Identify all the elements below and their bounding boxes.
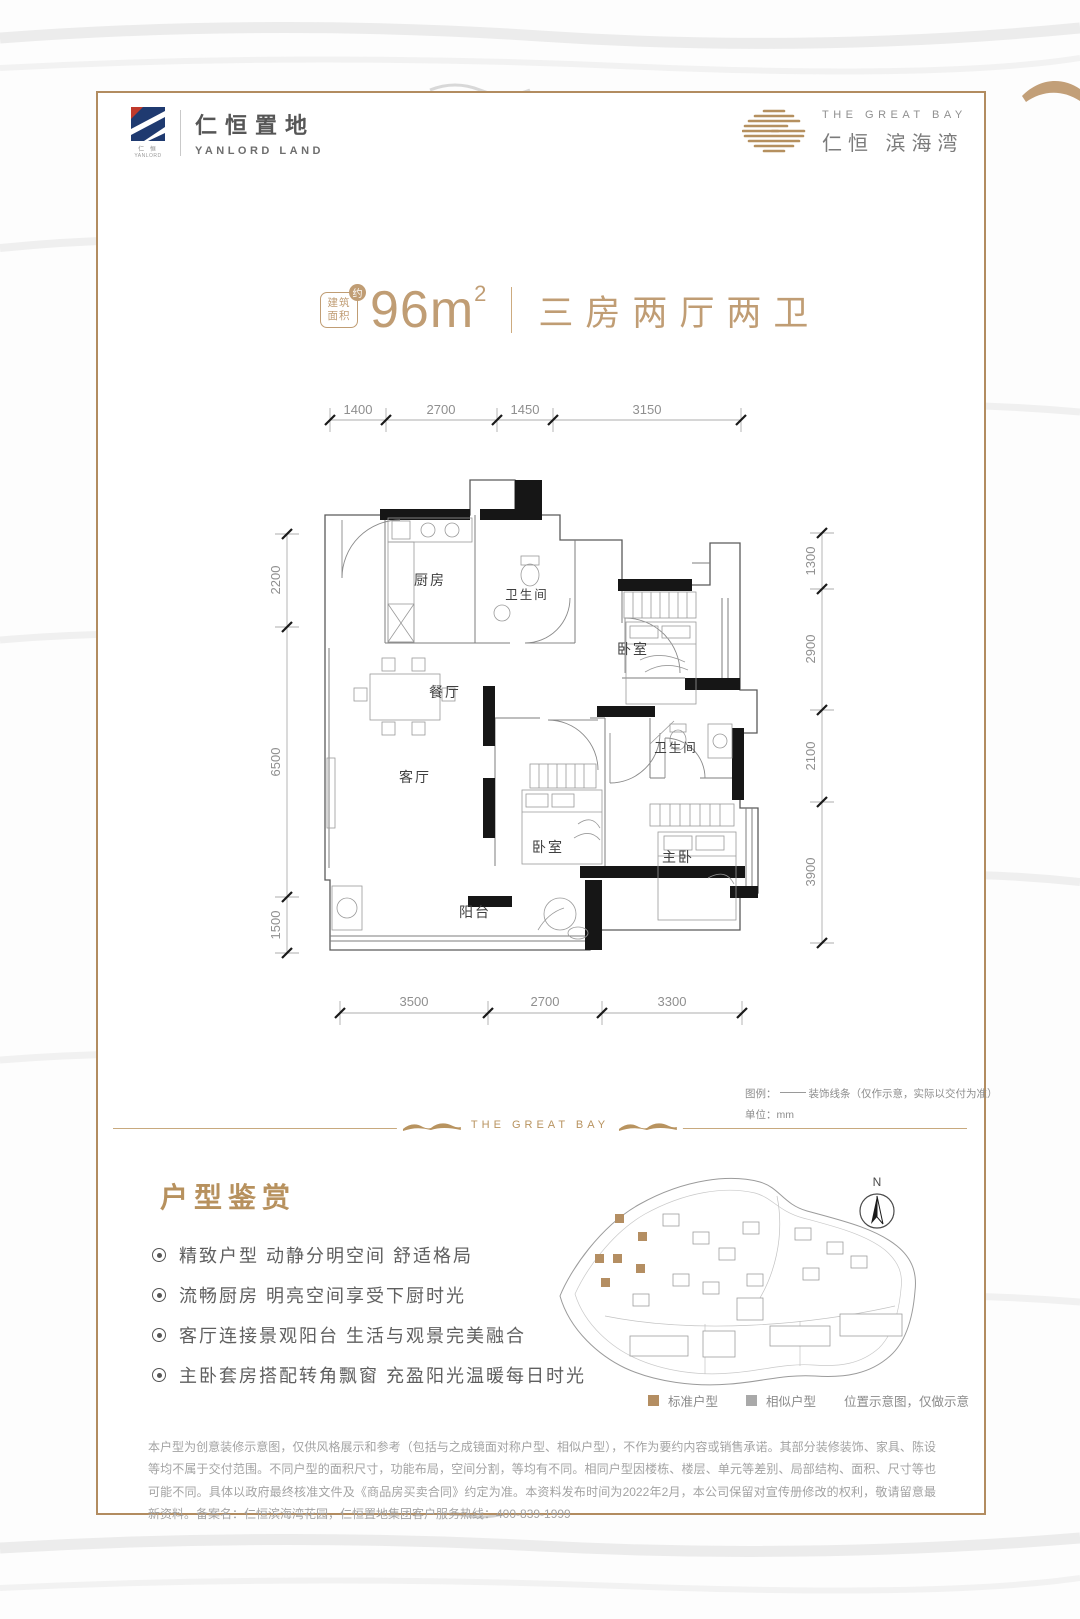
section-divider-label: THE GREAT BAY [397, 1118, 683, 1132]
room-label-kitchen: 厨房 [414, 572, 446, 588]
brand-divider [180, 110, 181, 156]
appreciation-heading: 户型鉴赏 [160, 1176, 296, 1216]
room-label-bath2: 卫生间 [654, 741, 698, 755]
bullet-icon [152, 1248, 166, 1262]
dim-bottom-2: 2700 [531, 994, 560, 1009]
similar-unit-swatch [746, 1395, 757, 1406]
brochure-page: 仁 恒 YANLORD 仁恒置地 YANLORD LAND [0, 0, 1080, 1619]
legend-text: 装饰线条（仅作示意，实际以交付为准） [809, 1088, 998, 1100]
list-item: 流畅厨房 明亮空间享受下厨时光 [152, 1282, 572, 1308]
greatbay-name-en: THE GREAT BAY [822, 109, 967, 121]
list-item: 主卧套房搭配转角飘窗 充盈阳光温暖每日时光 [152, 1362, 572, 1388]
bullet-text: 客厅连接景观阳台 生活与观景完美融合 [179, 1322, 526, 1348]
bullet-text: 流畅厨房 明亮空间享受下厨时光 [179, 1282, 466, 1308]
room-label-bedroom1: 卧室 [617, 641, 649, 657]
bullet-icon [152, 1368, 166, 1382]
greatbay-brand: THE GREAT BAY 仁恒 滨海湾 [742, 108, 967, 156]
title-divider [511, 287, 512, 333]
approx-circle: 约 [349, 284, 366, 301]
list-item: 客厅连接景观阳台 生活与观景完美融合 [152, 1322, 572, 1348]
bullet-text: 精致户型 动静分明空间 舒适格局 [179, 1242, 473, 1268]
greatbay-name-cn: 仁恒 滨海湾 [822, 127, 967, 156]
dim-top-1: 1400 [344, 402, 373, 417]
dim-left-2: 6500 [268, 748, 283, 777]
dim-bottom-1: 3500 [400, 994, 429, 1009]
area-badge: 建筑 面积 约 [320, 292, 358, 328]
layout-name: 三房两厅两卫 [538, 285, 820, 336]
yanlord-logo-icon: 仁 恒 YANLORD [130, 106, 166, 159]
unit-text: 单位：mm [745, 1105, 998, 1126]
room-label-balcony: 阳台 [459, 904, 491, 920]
site-legend: 标准户型 相似户型 位置示意图，仅做示意 [648, 1391, 969, 1410]
bullet-text: 主卧套房搭配转角飘窗 充盈阳光温暖每日时光 [179, 1362, 586, 1388]
area-badge-line1: 建筑 [328, 297, 351, 310]
site-plan: N [545, 1156, 935, 1386]
appreciation-list: 精致户型 动静分明空间 舒适格局 流畅厨房 明亮空间享受下厨时光 客厅连接景观阳… [152, 1242, 572, 1402]
outer-wall [325, 480, 758, 950]
dim-right-4: 3900 [803, 858, 818, 887]
yanlord-brand: 仁 恒 YANLORD 仁恒置地 YANLORD LAND [130, 106, 324, 159]
compass-north-label: N [873, 1175, 882, 1189]
divider-text: THE GREAT BAY [471, 1119, 609, 1131]
area-badge-line2: 面积 [328, 310, 351, 323]
wave-icon [403, 1118, 461, 1132]
area-sup: 2 [474, 281, 487, 306]
dim-bottom-3: 3300 [658, 994, 687, 1009]
dim-right-3: 2100 [803, 742, 818, 771]
plan-legend: 图例：装饰线条（仅作示意，实际以交付为准） 单位：mm [745, 1084, 998, 1126]
disclaimer-text: 本户型为创意装修示意图，仅供风格展示和参考（包括与之成镜面对称户型、相似户型），… [148, 1436, 936, 1525]
decorative-line-sample [780, 1092, 806, 1093]
compass-icon: N [860, 1175, 894, 1228]
yanlord-name-cn: 仁恒置地 [195, 108, 324, 140]
site-buildings [630, 1214, 902, 1357]
floor-plan: 1400 2700 1450 3150 2200 6500 1500 1300 … [230, 388, 870, 1028]
site-legend-note: 位置示意图，仅做示意 [844, 1391, 969, 1410]
room-label-living: 客厅 [399, 769, 431, 785]
bullet-icon [152, 1288, 166, 1302]
bullet-icon [152, 1328, 166, 1342]
yanlord-mark-en: YANLORD [134, 153, 161, 159]
room-label-dining: 餐厅 [429, 684, 461, 700]
dim-top-3: 1450 [511, 402, 540, 417]
dim-top-4: 3150 [633, 402, 662, 417]
unit-title: 建筑 面积 约 96m2 三房两厅两卫 [320, 280, 820, 340]
similar-unit-label: 相似户型 [766, 1391, 816, 1410]
dim-right-2: 2900 [803, 635, 818, 664]
dim-top-2: 2700 [427, 402, 456, 417]
dim-right-1: 1300 [803, 547, 818, 576]
room-label-master: 主卧 [662, 849, 694, 865]
standard-unit-swatch [648, 1395, 659, 1406]
wave-icon [619, 1118, 677, 1132]
greatbay-logo-icon [742, 108, 806, 156]
shear-walls [380, 480, 758, 950]
yanlord-name-en: YANLORD LAND [195, 145, 324, 157]
room-label-bedroom2: 卧室 [532, 839, 564, 855]
yanlord-mark-cn: 仁 恒 [138, 144, 158, 153]
area-number: 96m [370, 281, 474, 339]
list-item: 精致户型 动静分明空间 舒适格局 [152, 1242, 572, 1268]
legend-label: 图例： [745, 1088, 777, 1100]
dim-left-1: 2200 [268, 566, 283, 595]
area-value: 96m2 [370, 280, 487, 340]
dim-left-3: 1500 [268, 911, 283, 940]
standard-unit-label: 标准户型 [668, 1391, 718, 1410]
room-label-bath1: 卫生间 [505, 588, 549, 602]
